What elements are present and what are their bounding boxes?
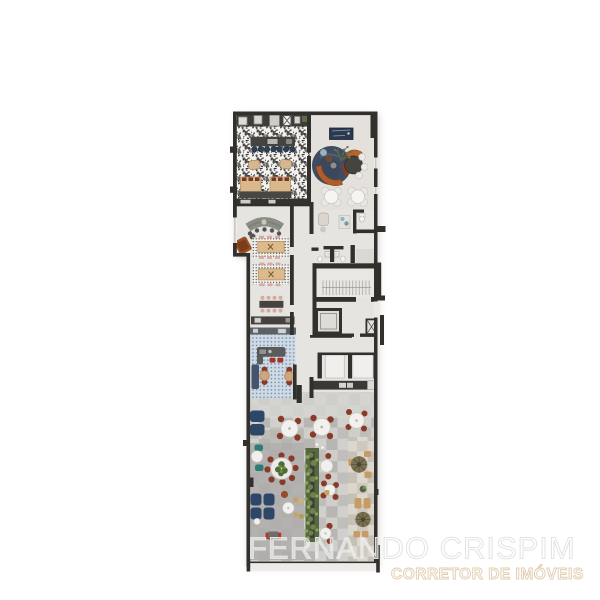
svg-text:CORRETOR DE IMÓVEIS: CORRETOR DE IMÓVEIS [391,565,584,583]
svg-text:FERNANDO CRISPIM: FERNANDO CRISPIM [248,531,576,566]
